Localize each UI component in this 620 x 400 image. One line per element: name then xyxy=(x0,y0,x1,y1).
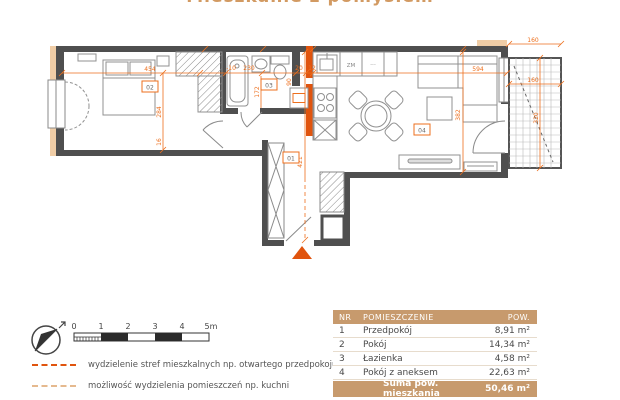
dim-10: -10 xyxy=(226,65,236,72)
balcony-door xyxy=(473,121,505,153)
bathroom-door xyxy=(241,112,262,127)
table-footer-row: Suma pow. mieszkania 50,46 m² xyxy=(333,381,537,397)
legend-item-zones: wydzielenie stref mieszkalnych np. otwar… xyxy=(32,360,337,370)
nightstand xyxy=(157,56,169,66)
row-name: Pokój z aneksem xyxy=(359,368,472,378)
row-area: 14,34 m² xyxy=(472,340,537,350)
row-area: 4,58 m² xyxy=(472,354,537,364)
dim-20: 20 xyxy=(295,65,303,72)
row-nr: 4 xyxy=(333,368,359,378)
header-nr: NR xyxy=(333,313,359,322)
dim-balcony-160b: 160 xyxy=(527,77,539,84)
hall-wardrobe xyxy=(268,143,284,238)
scale-tick-0: 0 xyxy=(71,322,76,331)
table-row: 1 Przedpokój 8,91 m² xyxy=(333,324,537,338)
bedroom-door xyxy=(203,121,223,148)
row-name: Łazienka xyxy=(359,354,472,364)
room-label-04: 04 xyxy=(418,128,426,135)
scale-tick-4: 4 xyxy=(179,322,184,331)
shaft xyxy=(322,216,344,240)
scale-tick-5: 5m xyxy=(205,322,218,331)
dim-balcony-320: 320 xyxy=(533,112,540,124)
scale-tick-3: 3 xyxy=(152,322,157,331)
row-nr: 1 xyxy=(333,326,359,336)
table-row: 4 Pokój z aneksem 22,63 m² xyxy=(333,366,537,380)
row-name: Pokój xyxy=(359,340,472,350)
row-name: Przedpokój xyxy=(359,326,472,336)
dim-594: 594 xyxy=(472,66,484,73)
footer-label: Suma pow. mieszkania xyxy=(359,379,472,399)
toilet-tank xyxy=(271,56,289,64)
hall-cabinet xyxy=(320,172,344,212)
row-area: 22,63 m² xyxy=(472,368,537,378)
cabinet-dots-label: ··· xyxy=(370,62,376,69)
dim-balcony-160: 160 xyxy=(527,37,539,44)
footer-total: 50,46 m² xyxy=(472,384,537,394)
table-header-row: NR POMIESZCZENIE POW. xyxy=(333,310,537,324)
table-row: 3 Łazienka 4,58 m² xyxy=(333,352,537,366)
room-label-01: 01 xyxy=(287,156,295,163)
dishwasher-label: ZM xyxy=(347,63,356,69)
legend-item-label: wydzielenie stref mieszkalnych np. otwar… xyxy=(88,360,337,370)
scale-tick-1: 1 xyxy=(98,322,103,331)
dim-172: 172 xyxy=(254,86,261,98)
wardrobe-top xyxy=(176,52,222,76)
dashed-line-sample xyxy=(32,364,76,366)
dim-382: 382 xyxy=(455,109,462,121)
header-name: POMIESZCZENIE xyxy=(359,313,472,322)
room-areas-table: NR POMIESZCZENIE POW. 1 Przedpokój 8,91 … xyxy=(333,310,537,397)
header-area: POW. xyxy=(472,313,537,322)
row-nr: 3 xyxy=(333,354,359,364)
row-area: 8,91 m² xyxy=(472,326,537,336)
north-compass-icon xyxy=(28,318,70,360)
table-row: 2 Pokój 14,34 m² xyxy=(333,338,537,352)
dining-set xyxy=(347,89,404,142)
dim-230: 230 xyxy=(243,65,255,72)
floor-plan: ZM ··· xyxy=(0,0,620,302)
dim-90: 90 xyxy=(286,78,293,86)
scale-bar: 0 1 2 3 4 5m xyxy=(70,320,230,348)
curtain-symbol xyxy=(65,82,89,130)
dim-454: 454 xyxy=(144,66,156,73)
dim-16: 16 xyxy=(156,138,163,146)
legend-item-label: możliwość wydzielenia pomieszczeń np. ku… xyxy=(88,381,289,391)
wardrobe-side xyxy=(198,76,222,112)
light-dashed-line-sample xyxy=(32,385,76,387)
scale-tick-2: 2 xyxy=(125,322,130,331)
coffee-table xyxy=(427,97,452,120)
tv xyxy=(408,159,452,163)
room-label-03: 03 xyxy=(265,83,273,90)
floor-plan-page: Mieszkanie z pomysłem xyxy=(0,0,620,400)
dim-284: 284 xyxy=(156,106,163,118)
toilet-bowl xyxy=(274,65,286,79)
hallway-storage xyxy=(268,143,344,240)
dim-12: 12 xyxy=(308,65,316,72)
scale-ticks: 0 1 2 3 4 5m xyxy=(71,322,217,331)
entrance-arrow xyxy=(292,246,312,259)
legend-item-partition: możliwość wydzielenia pomieszczeń np. ku… xyxy=(32,381,289,391)
room-label-02: 02 xyxy=(146,85,154,92)
row-nr: 2 xyxy=(333,340,359,350)
wall-shelf xyxy=(78,54,96,61)
legend: 0 1 2 3 4 5m wydzielenie stref mieszkaln… xyxy=(24,312,344,400)
